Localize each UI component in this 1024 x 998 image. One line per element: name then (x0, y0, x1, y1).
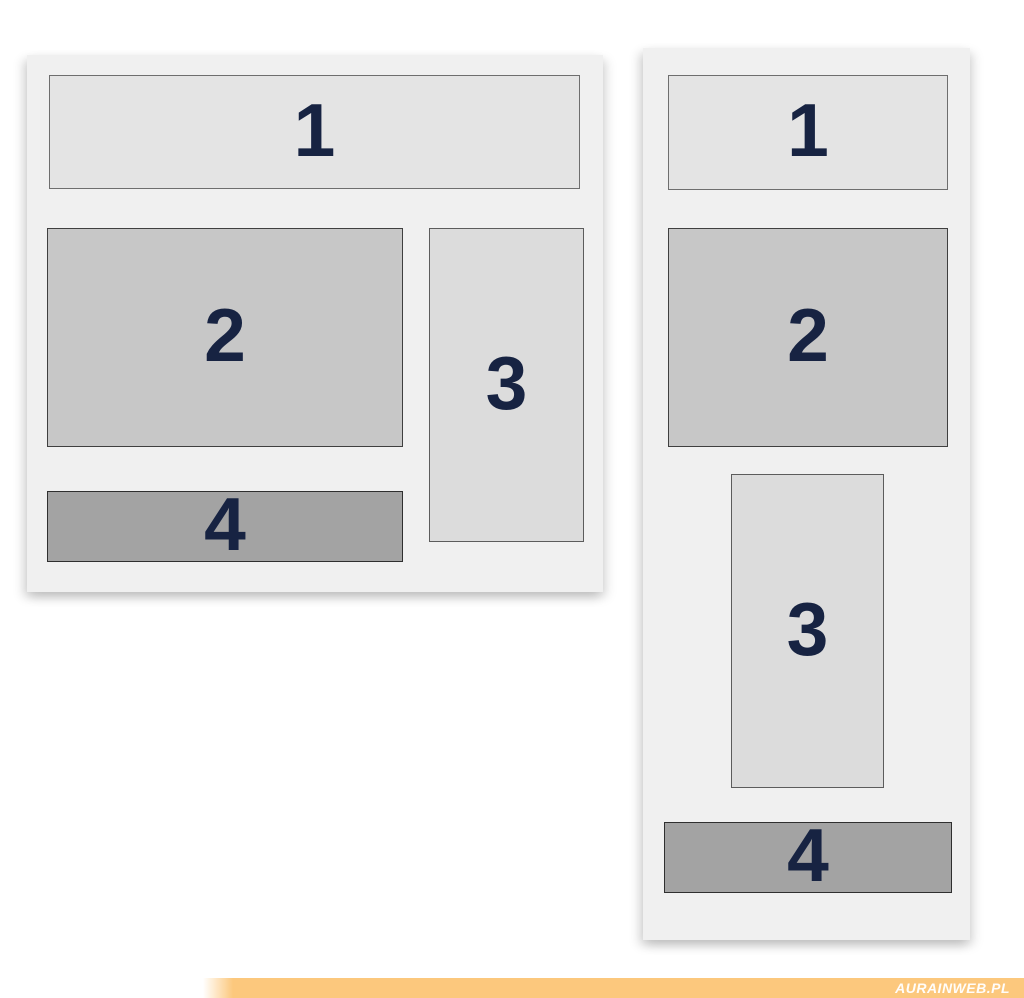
mobile-block-1-label: 1 (787, 93, 829, 168)
desktop-block-4-label: 4 (204, 487, 246, 562)
watermark-bar: AURAINWEB.PL (203, 978, 1024, 998)
desktop-layout-panel: 1 2 3 4 (27, 55, 603, 592)
mobile-block-1: 1 (668, 75, 948, 190)
watermark-text: AURAINWEB.PL (895, 980, 1010, 996)
mobile-layout-panel: 1 2 3 4 (643, 48, 970, 940)
mobile-block-4: 4 (664, 822, 952, 893)
mobile-block-4-label: 4 (787, 818, 829, 893)
desktop-block-3-label: 3 (486, 346, 528, 421)
mobile-block-3-label: 3 (787, 592, 829, 667)
desktop-block-2-label: 2 (204, 298, 246, 373)
desktop-block-4: 4 (47, 491, 403, 562)
desktop-block-1-label: 1 (294, 93, 336, 168)
desktop-block-3: 3 (429, 228, 584, 542)
desktop-block-2: 2 (47, 228, 403, 447)
mobile-block-3: 3 (731, 474, 884, 788)
mobile-block-2-label: 2 (787, 298, 829, 373)
desktop-block-1: 1 (49, 75, 580, 189)
mobile-block-2: 2 (668, 228, 948, 447)
